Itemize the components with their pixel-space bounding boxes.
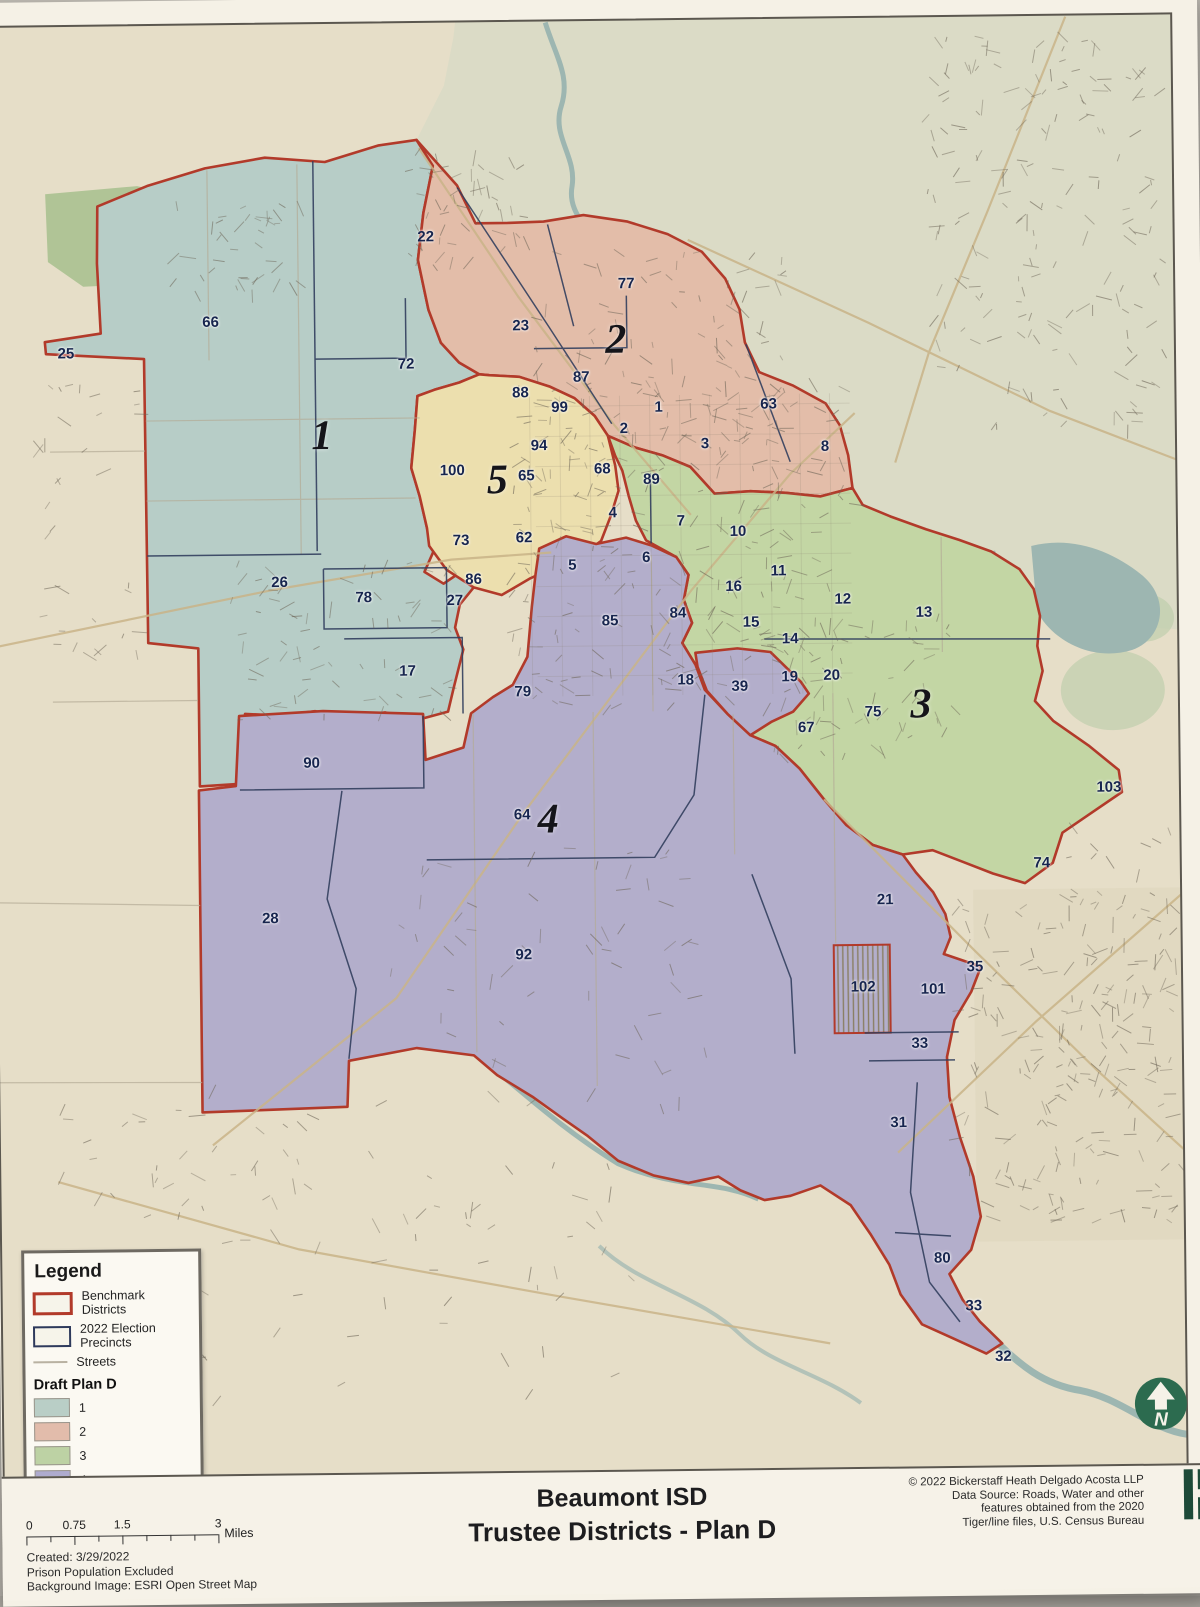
scale-tick-label: 0.75 — [62, 1518, 86, 1532]
firm-logo — [1182, 1467, 1200, 1521]
legend-class-2: 2 — [34, 1421, 192, 1442]
legend-title: Legend — [34, 1260, 190, 1284]
district-1-swatch — [34, 1398, 70, 1417]
note-background: Background Image: ESRI Open Street Map — [27, 1577, 257, 1594]
legend-class-label: 2 — [79, 1424, 86, 1438]
district-2-swatch — [34, 1422, 70, 1441]
map-sheet: 2266772523728788996312943810065688947736… — [0, 0, 1200, 1607]
title-strip: 0 0.75 1.5 3 Miles Created: 3/29/2022 Pr… — [2, 1463, 1200, 1601]
precinct-102-hatched — [834, 945, 891, 1034]
legend-panel: Legend Benchmark Districts 2022 Election… — [21, 1248, 204, 1504]
legend-item-label: 2022 Election Precincts — [80, 1321, 191, 1350]
urban-area-southeast — [973, 887, 1185, 1241]
scale-tick-label: 3 — [215, 1516, 222, 1530]
map-notes: Created: 3/29/2022 Prison Population Exc… — [27, 1548, 258, 1594]
district-3-swatch — [34, 1446, 70, 1465]
north-letter: N — [1154, 1410, 1169, 1431]
legend-class-1: 1 — [34, 1397, 192, 1418]
scale-bar: 0 0.75 1.5 3 Miles — [26, 1516, 266, 1549]
scale-unit-label: Miles — [224, 1526, 253, 1540]
map-credits: © 2022 Bickerstaff Heath Delgado Acosta … — [814, 1474, 1145, 1532]
legend-class-label: 1 — [79, 1400, 86, 1414]
legend-item-precincts: 2022 Election Precincts — [33, 1321, 191, 1351]
legend-item-benchmark: Benchmark Districts — [33, 1288, 191, 1318]
north-arrow: N — [1131, 1373, 1192, 1434]
street-swatch-icon — [33, 1361, 67, 1363]
credit-line: Tiger/line files, U.S. Census Bureau — [814, 1514, 1144, 1531]
photo-backdrop: 2266772523728788996312943810065688947736… — [0, 0, 1200, 1596]
benchmark-swatch-icon — [33, 1291, 73, 1314]
scale-tick-label: 0 — [26, 1518, 33, 1532]
legend-item-label: Benchmark Districts — [82, 1288, 191, 1317]
draft-plan-title: Draft Plan D — [34, 1376, 192, 1394]
scale-tick-label: 1.5 — [114, 1517, 131, 1531]
legend-class-3: 3 — [34, 1445, 192, 1466]
legend-item-label: Streets — [76, 1354, 116, 1368]
legend-item-streets: Streets — [33, 1354, 191, 1370]
legend-class-label: 3 — [79, 1448, 86, 1462]
precinct-swatch-icon — [33, 1325, 71, 1346]
